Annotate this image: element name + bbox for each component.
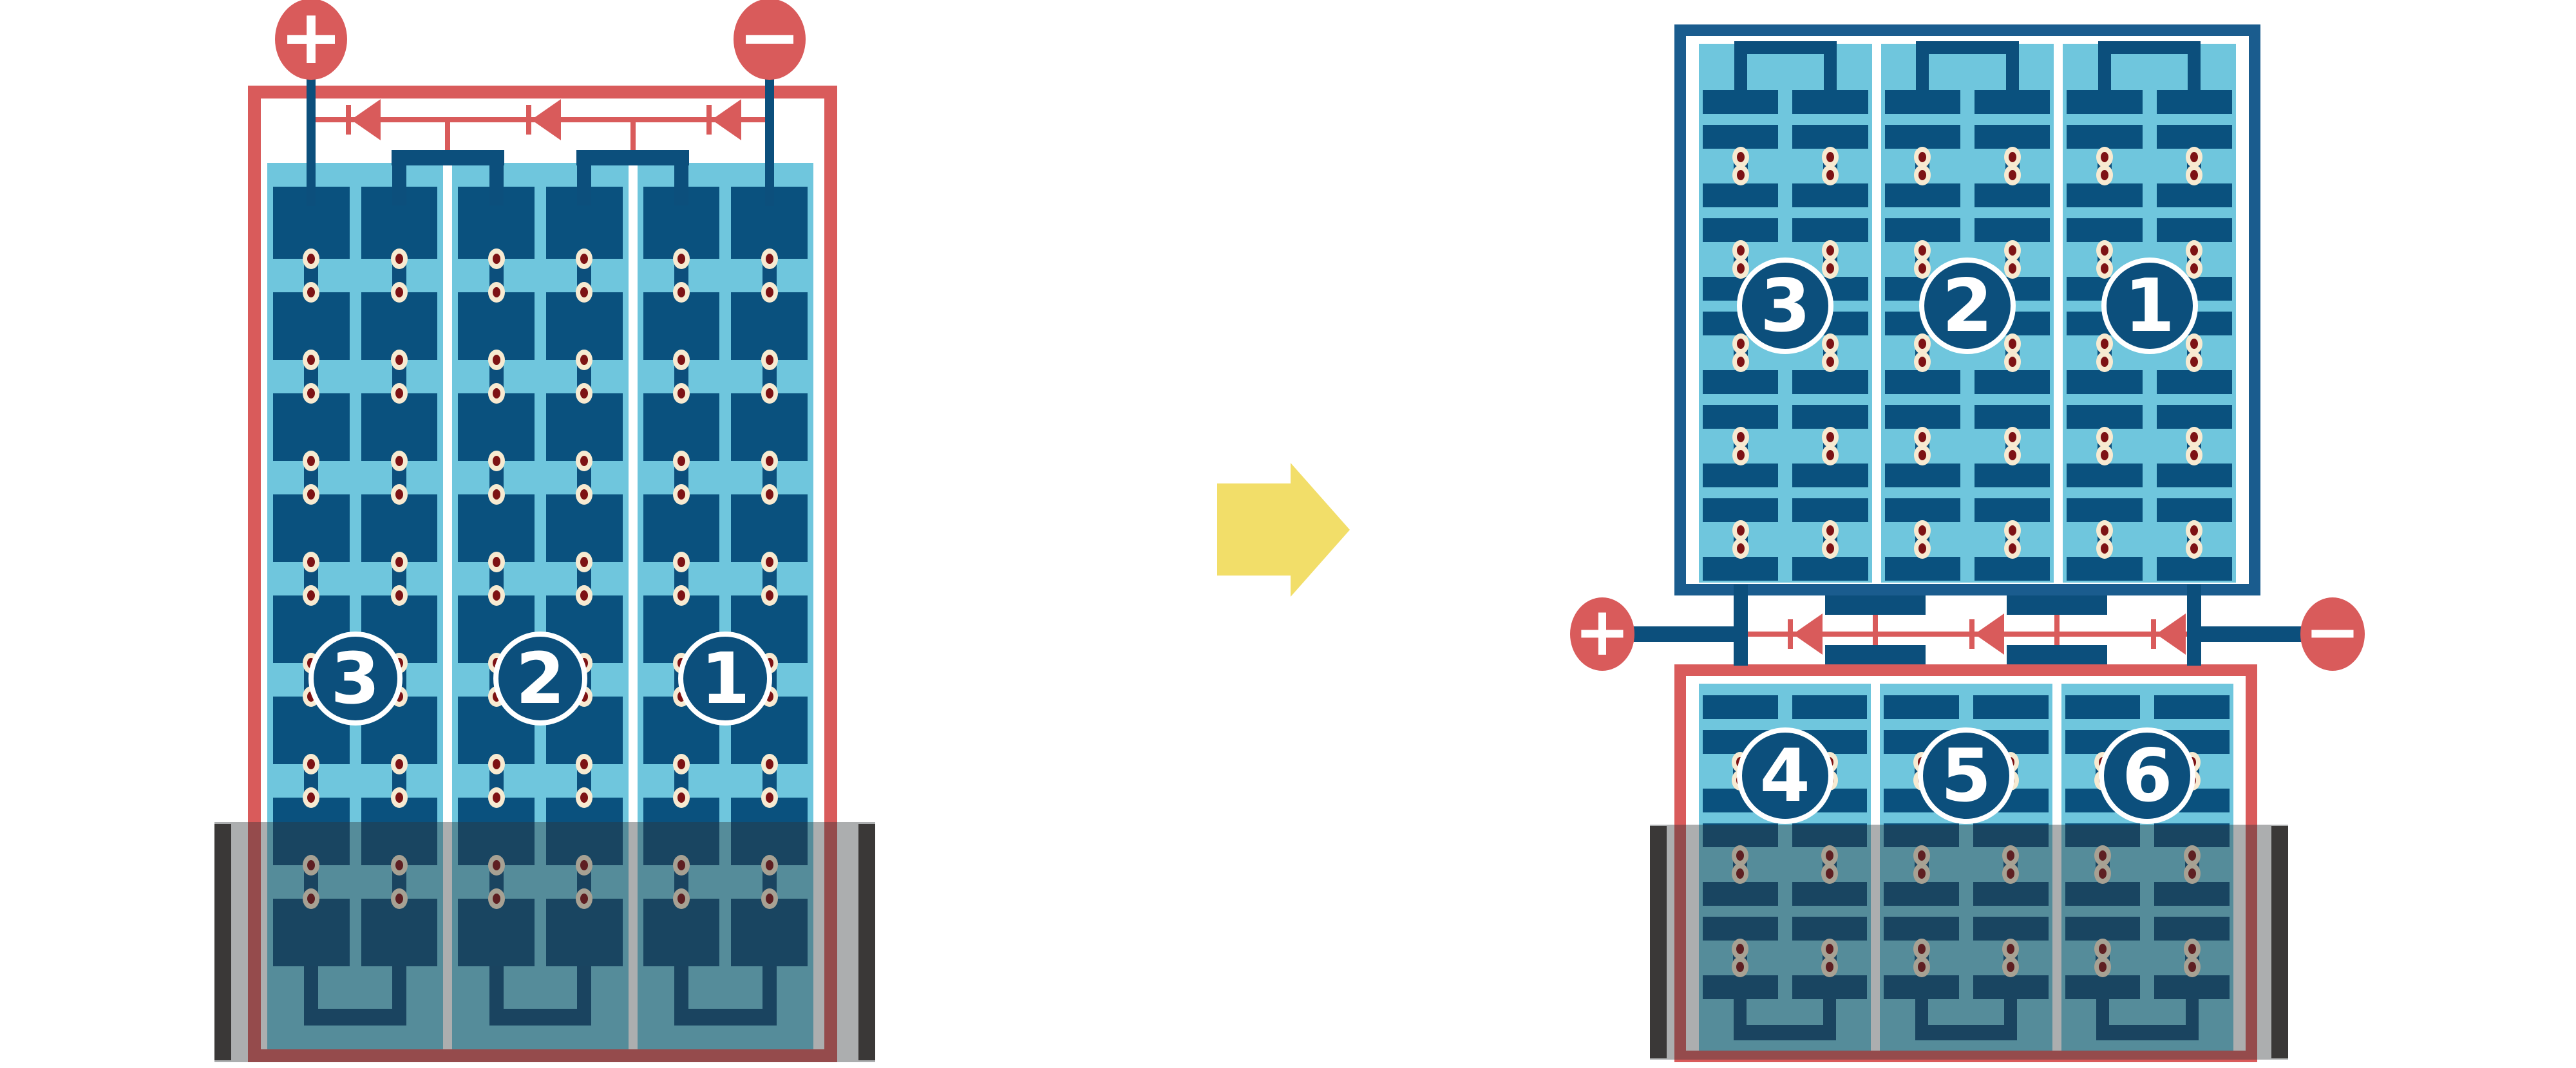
solder-joint-core	[493, 489, 500, 500]
pv-cell	[2157, 464, 2232, 487]
solder-joint-core	[493, 456, 500, 466]
solder-joint-core	[2009, 245, 2016, 256]
terminal-negative-after: −	[2300, 597, 2365, 671]
pv-cell	[1792, 183, 1868, 207]
pv-cell	[2067, 464, 2142, 487]
pv-cell	[2067, 557, 2142, 581]
solder-joint-core	[677, 557, 685, 567]
pv-cell	[1885, 498, 1960, 522]
pv-cell	[1885, 464, 1960, 487]
solder-joint-core	[1826, 152, 1834, 162]
string-link-leg	[2098, 54, 2111, 90]
pv-cell	[1703, 405, 1778, 429]
rail-right	[2271, 826, 2288, 1058]
solder-joint-core	[493, 287, 500, 297]
module-number-badge: 1	[678, 632, 772, 726]
solder-joint-core	[2009, 263, 2016, 274]
pv-cell	[1975, 370, 2050, 394]
module-divider	[2054, 44, 2063, 583]
module-number-badge: 5	[1918, 727, 2014, 824]
pv-cell	[1975, 557, 2050, 581]
solder-joint-core	[395, 759, 403, 769]
solder-joint-core	[677, 489, 685, 500]
solder-joint-core	[493, 759, 500, 769]
solder-joint-core	[493, 355, 500, 365]
solder-joint-core	[493, 792, 500, 803]
string-link-leg	[2006, 54, 2019, 90]
solder-joint-core	[1737, 339, 1745, 349]
solder-joint-core	[2101, 432, 2108, 442]
solder-joint-core	[766, 792, 773, 803]
pv-cell	[2067, 183, 2142, 207]
solder-joint-core	[1826, 263, 1834, 274]
solder-joint-core	[766, 489, 773, 500]
terminal-lead-wire	[765, 61, 774, 206]
solder-joint-core	[1737, 543, 1745, 554]
rail-left	[1650, 826, 1667, 1058]
pv-cell	[1975, 405, 2050, 429]
pv-cell	[2065, 695, 2141, 719]
pv-cell	[1792, 370, 1868, 394]
solder-joint-core	[2009, 357, 2016, 367]
pv-cell	[1792, 557, 1868, 581]
solder-joint-core	[677, 792, 685, 803]
solder-joint-core	[2101, 450, 2108, 460]
pv-cell	[1885, 90, 1960, 114]
solder-joint-core	[677, 456, 685, 466]
transform-arrow-icon	[1217, 463, 1352, 597]
string-link-bar	[1916, 41, 2018, 54]
solder-joint-core	[2009, 543, 2016, 554]
terminal-lead-wire	[307, 61, 316, 206]
terminal-negative-before: −	[734, 0, 806, 80]
module-number-badge: 3	[308, 632, 402, 726]
pv-cell	[1884, 695, 1959, 719]
pv-cell	[2157, 125, 2232, 149]
water-overlay	[1650, 825, 2288, 1060]
pv-cell	[2154, 695, 2230, 719]
arrow-body	[1217, 483, 1293, 576]
solder-joint-core	[1737, 245, 1745, 256]
pv-cell	[1792, 405, 1868, 429]
solder-joint-core	[766, 590, 773, 601]
pv-cell	[1703, 498, 1778, 522]
terminal-positive-after: +	[1570, 597, 1634, 671]
pv-cell	[1792, 218, 1868, 242]
solder-joint-core	[766, 456, 773, 466]
rail-right	[858, 824, 875, 1060]
pv-cell	[2157, 557, 2232, 581]
series-tab-top	[2007, 595, 2107, 615]
solder-joint-core	[2009, 170, 2016, 180]
solder-joint-core	[1826, 339, 1834, 349]
string-link-bar	[2098, 41, 2201, 54]
pv-cell	[2067, 218, 2142, 242]
solder-joint-core	[395, 254, 403, 264]
pv-cell	[1885, 557, 1960, 581]
solder-joint-core	[2101, 357, 2108, 367]
pv-cell	[1975, 218, 2050, 242]
water-overlay	[214, 822, 875, 1062]
solder-joint-core	[395, 287, 403, 297]
solder-joint-core	[2101, 170, 2108, 180]
current-tick	[2151, 619, 2156, 649]
solder-joint-core	[2009, 432, 2016, 442]
solder-joint-core	[2101, 263, 2108, 274]
solder-joint-core	[1737, 432, 1745, 442]
module-divider	[1872, 44, 1881, 583]
pv-cell	[1703, 125, 1778, 149]
solder-joint-core	[677, 254, 685, 264]
pv-cell	[2157, 405, 2232, 429]
module-number-badge: 3	[1737, 258, 1833, 354]
pv-cell	[2157, 218, 2232, 242]
pv-cell	[1975, 464, 2050, 487]
current-arrow-left-icon	[1975, 614, 2004, 655]
pv-cell	[1885, 125, 1960, 149]
module-number-badge: 2	[1919, 258, 2016, 354]
solder-joint-core	[2101, 152, 2108, 162]
solder-joint-core	[2009, 152, 2016, 162]
current-tick	[1788, 619, 1793, 649]
arrow-head	[1291, 463, 1350, 597]
solder-joint-core	[1826, 450, 1834, 460]
pv-cell	[1975, 90, 2050, 114]
solder-joint-core	[2101, 525, 2108, 536]
solder-joint-core	[395, 557, 403, 567]
solder-joint-core	[766, 388, 773, 398]
pv-cell	[2157, 498, 2232, 522]
solder-joint-core	[1737, 152, 1745, 162]
solder-joint-core	[2101, 543, 2108, 554]
pv-cell	[1703, 218, 1778, 242]
pv-cell	[1792, 498, 1868, 522]
pv-cell	[1703, 370, 1778, 394]
pv-cell	[1975, 183, 2050, 207]
pv-cell	[2067, 405, 2142, 429]
solder-joint-core	[2101, 245, 2108, 256]
module-number-badge: 2	[493, 632, 587, 726]
solder-joint-core	[766, 287, 773, 297]
rail-left	[214, 824, 231, 1060]
solder-joint-core	[766, 355, 773, 365]
solder-joint-core	[1737, 170, 1745, 180]
series-tab-bottom	[1825, 645, 1926, 664]
series-tab-bottom	[2007, 645, 2107, 664]
solder-joint-core	[1737, 357, 1745, 367]
pv-cell	[1885, 183, 1960, 207]
module-number-badge: 4	[1737, 727, 1833, 824]
solder-joint-core	[1826, 432, 1834, 442]
solder-joint-core	[1737, 450, 1745, 460]
solder-joint-core	[1826, 357, 1834, 367]
solder-joint-core	[493, 557, 500, 567]
solder-joint-core	[395, 792, 403, 803]
solder-joint-core	[677, 759, 685, 769]
solder-joint-core	[766, 557, 773, 567]
pv-cell	[1792, 464, 1868, 487]
solder-joint-core	[395, 489, 403, 500]
pv-cell	[1792, 695, 1868, 719]
solder-joint-core	[395, 388, 403, 398]
current-arrow-left-icon	[1793, 614, 1823, 655]
string-link-leg	[1824, 54, 1837, 90]
solder-joint-core	[2009, 450, 2016, 460]
solder-joint-core	[1826, 543, 1834, 554]
solder-joint-core	[677, 590, 685, 601]
solder-joint-core	[493, 590, 500, 601]
solder-joint-core	[2009, 339, 2016, 349]
pv-cell	[1792, 90, 1868, 114]
solder-joint-core	[2009, 525, 2016, 536]
pv-cell	[2067, 370, 2142, 394]
pv-cell	[1975, 498, 2050, 522]
string-link-bar	[1734, 41, 1837, 54]
pv-cell	[1703, 464, 1778, 487]
solder-joint-core	[677, 388, 685, 398]
pv-cell	[1885, 218, 1960, 242]
solder-joint-core	[395, 590, 403, 601]
terminal-lead-wire	[1632, 626, 1741, 642]
solder-joint-core	[493, 254, 500, 264]
pv-cell	[1703, 557, 1778, 581]
pv-cell	[1703, 90, 1778, 114]
terminal-lead-wire	[1734, 585, 1748, 666]
solder-joint-core	[2101, 339, 2108, 349]
solder-joint-core	[1826, 525, 1834, 536]
pv-cell	[2067, 90, 2142, 114]
pv-cell	[2157, 370, 2232, 394]
terminal-lead-wire	[2187, 585, 2201, 666]
solder-joint-core	[493, 388, 500, 398]
pv-cell	[2067, 498, 2142, 522]
pv-cell	[1703, 183, 1778, 207]
pv-cell	[2157, 90, 2232, 114]
pv-cell	[2157, 183, 2232, 207]
string-link-leg	[2188, 54, 2201, 90]
solder-joint-core	[1826, 245, 1834, 256]
series-tab-top	[1825, 595, 1926, 615]
current-arrow-left-icon	[2156, 614, 2186, 655]
solder-joint-core	[395, 456, 403, 466]
solder-joint-core	[1737, 263, 1745, 274]
solder-joint-core	[677, 287, 685, 297]
string-link-leg	[1916, 54, 1929, 90]
string-link-leg	[1734, 54, 1747, 90]
module-number-badge: 6	[2099, 727, 2195, 824]
pv-cell	[1973, 695, 2049, 719]
terminal-positive-before: +	[275, 0, 347, 80]
pv-cell	[1703, 695, 1778, 719]
solder-joint-core	[677, 355, 685, 365]
pv-cell	[1792, 125, 1868, 149]
current-tick	[1969, 619, 1975, 649]
pv-cell	[1885, 405, 1960, 429]
diagram-canvas: 321 321456 + − + −	[0, 0, 2576, 1068]
solder-joint-core	[766, 254, 773, 264]
solder-joint-core	[1826, 170, 1834, 180]
pv-cell	[2067, 125, 2142, 149]
pv-cell	[1975, 125, 2050, 149]
pv-cell	[1885, 370, 1960, 394]
solder-joint-core	[395, 355, 403, 365]
solder-joint-core	[766, 759, 773, 769]
terminal-lead-wire	[2194, 626, 2303, 642]
solder-joint-core	[1737, 525, 1745, 536]
module-number-badge: 1	[2101, 258, 2198, 354]
